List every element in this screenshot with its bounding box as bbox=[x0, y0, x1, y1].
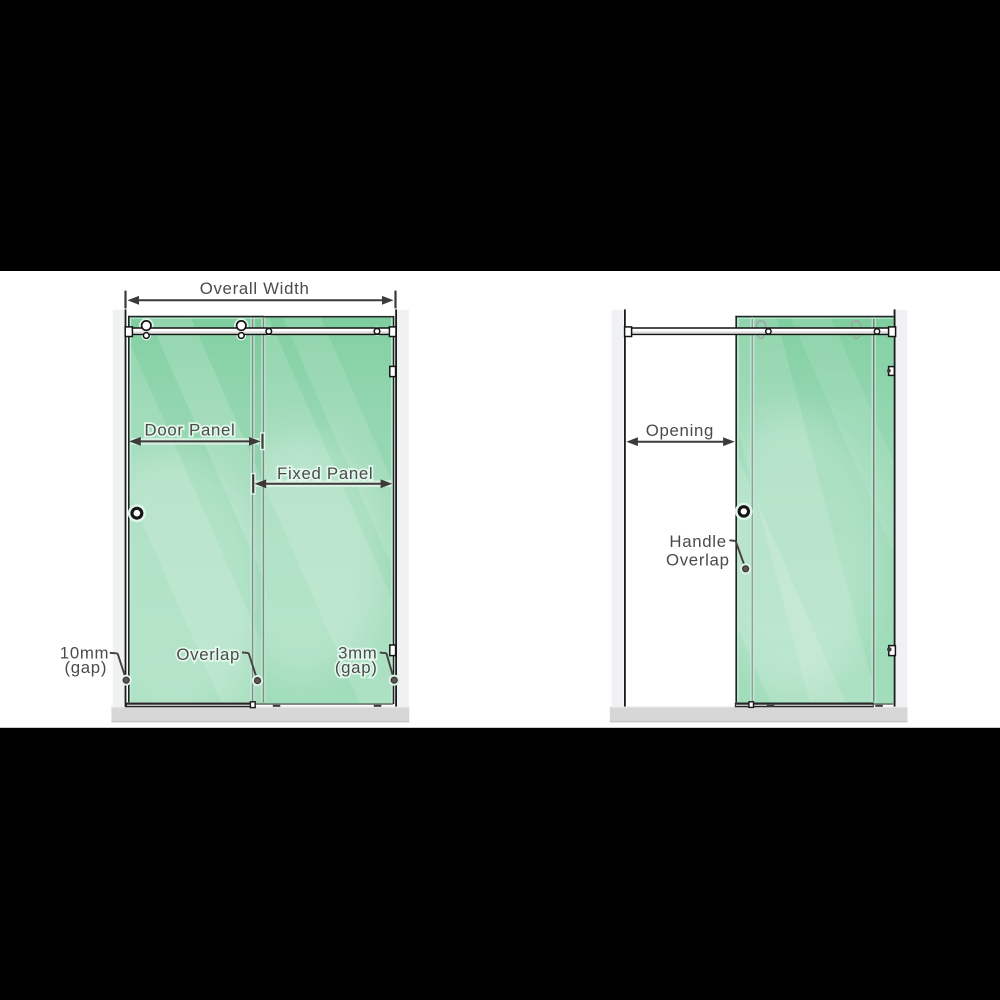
svg-text:Fixed Panel: Fixed Panel bbox=[277, 464, 373, 483]
svg-text:(gap): (gap) bbox=[335, 658, 378, 677]
svg-text:Opening: Opening bbox=[646, 421, 714, 440]
svg-text:Overall Width: Overall Width bbox=[200, 279, 310, 298]
svg-text:Handle: Handle bbox=[669, 532, 726, 551]
svg-text:Overlap: Overlap bbox=[666, 551, 730, 570]
svg-text:(gap): (gap) bbox=[64, 658, 107, 677]
svg-text:Overlap: Overlap bbox=[176, 645, 240, 664]
svg-text:Door Panel: Door Panel bbox=[145, 420, 236, 439]
